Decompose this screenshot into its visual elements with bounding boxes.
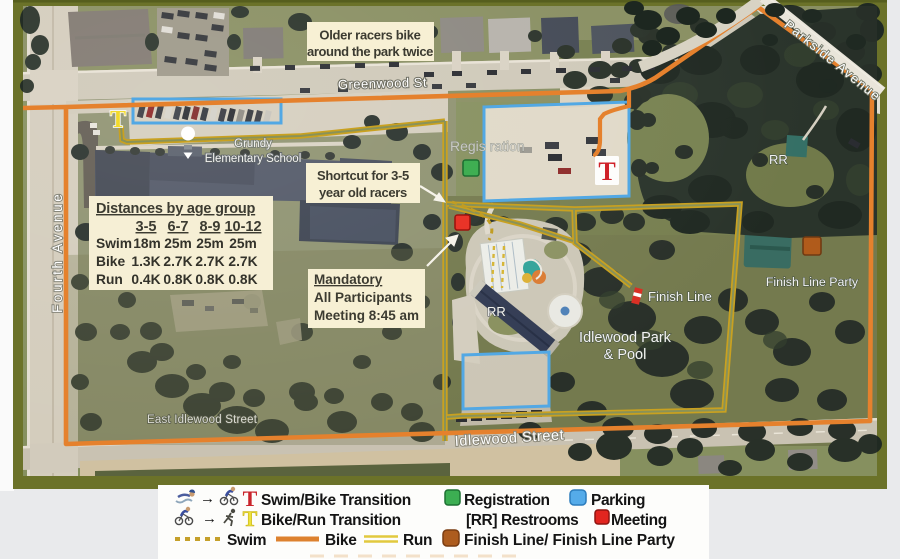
svg-text:T: T <box>110 107 126 133</box>
svg-text:1.3K: 1.3K <box>131 254 160 269</box>
svg-text:All Participants: All Participants <box>314 290 412 305</box>
svg-text:Swim: Swim <box>96 236 132 251</box>
svg-text:Finish Line/ Finish Line Party: Finish Line/ Finish Line Party <box>464 532 675 549</box>
svg-text:[RR] Restrooms: [RR] Restrooms <box>466 512 578 529</box>
svg-text:Parking: Parking <box>591 492 645 509</box>
svg-text:Elementary School: Elementary School <box>205 153 302 165</box>
svg-text:10-12: 10-12 <box>224 219 261 235</box>
svg-text:18m: 18m <box>133 236 161 251</box>
svg-text:0.8K: 0.8K <box>195 272 224 287</box>
svg-text:Meeting 8:45 am: Meeting 8:45 am <box>314 308 419 323</box>
svg-text:→: → <box>202 510 217 527</box>
svg-text:Grundy: Grundy <box>234 138 272 150</box>
svg-text:0.4K: 0.4K <box>131 272 160 287</box>
svg-text:Bike: Bike <box>96 254 125 269</box>
svg-text:T: T <box>243 506 258 531</box>
svg-text:Bike/Run Transition: Bike/Run Transition <box>261 512 401 529</box>
svg-text:6-7: 6-7 <box>168 219 189 235</box>
svg-text:T: T <box>598 157 615 186</box>
svg-text:Finish Line: Finish Line <box>648 289 712 304</box>
svg-text:RR: RR <box>769 152 788 167</box>
svg-text:East Idlewood Street: East Idlewood Street <box>147 414 258 426</box>
svg-text:Idlewood Park: Idlewood Park <box>579 330 672 346</box>
svg-text:Fourth Avenue: Fourth Avenue <box>50 192 65 313</box>
svg-text:RR: RR <box>487 304 506 319</box>
svg-text:Greenwood St: Greenwood St <box>338 75 427 92</box>
svg-text:Bike: Bike <box>325 532 357 549</box>
svg-text:2.7K: 2.7K <box>228 254 257 269</box>
svg-text:year old racers: year old racers <box>319 185 407 200</box>
svg-text:Run: Run <box>403 532 432 549</box>
svg-text:Run: Run <box>96 272 123 287</box>
svg-text:0.8K: 0.8K <box>228 272 257 287</box>
svg-text:2.7K: 2.7K <box>195 254 224 269</box>
svg-text:3-5: 3-5 <box>136 219 157 235</box>
svg-text:25m: 25m <box>229 236 257 251</box>
svg-text:Regis ration: Regis ration <box>450 138 525 154</box>
svg-text:Shortcut for 3-5: Shortcut for 3-5 <box>317 168 409 183</box>
svg-text:Finish Line Party: Finish Line Party <box>766 275 859 289</box>
svg-text:25m: 25m <box>196 236 224 251</box>
svg-text:Mandatory: Mandatory <box>314 272 383 287</box>
svg-text:0.8K: 0.8K <box>163 272 192 287</box>
svg-text:Swim/Bike Transition: Swim/Bike Transition <box>261 492 411 509</box>
svg-text:Older racers bike: Older racers bike <box>319 28 420 43</box>
svg-text:Distances by age group: Distances by age group <box>96 201 256 217</box>
svg-text:→: → <box>200 490 215 507</box>
svg-text:Registration: Registration <box>464 492 550 509</box>
svg-text:2.7K: 2.7K <box>163 254 192 269</box>
svg-text:8-9: 8-9 <box>200 219 221 235</box>
svg-text:Swim: Swim <box>227 532 266 549</box>
svg-text:around the park twice: around the park twice <box>307 44 433 59</box>
svg-text:& Pool: & Pool <box>604 347 647 363</box>
svg-text:25m: 25m <box>164 236 192 251</box>
svg-text:Meeting: Meeting <box>611 512 667 529</box>
